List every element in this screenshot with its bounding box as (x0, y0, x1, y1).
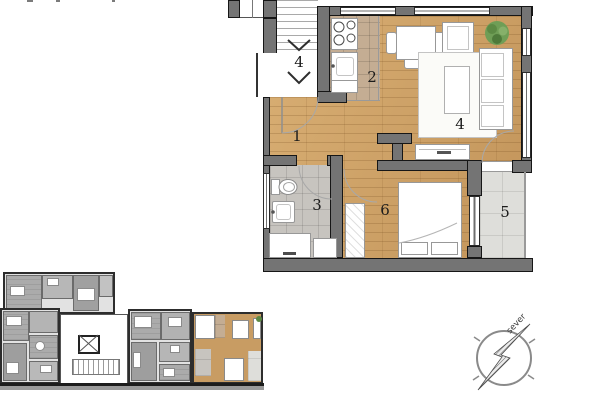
stairwell-wall (263, 18, 277, 55)
stair-line (252, 0, 253, 18)
pillow (401, 242, 428, 255)
terrace-door-opening (482, 161, 512, 172)
ground-line (0, 383, 264, 390)
mini-furniture (170, 345, 180, 353)
window (263, 173, 270, 229)
stove (331, 18, 358, 50)
overview-apartment (0, 308, 60, 384)
kitchen-counter (331, 80, 358, 93)
kitchen-sink-basin (336, 57, 354, 76)
terrace-window-door (469, 196, 480, 246)
kitchen-floor-edge (378, 14, 379, 101)
room-label-bedroom: 6 (380, 201, 390, 219)
coffee-table (444, 66, 470, 114)
shower-drain (283, 252, 296, 255)
room-label-terrace: 5 (500, 203, 510, 221)
compass-circle (477, 331, 531, 385)
pillow (431, 242, 458, 255)
mini-furniture (133, 352, 141, 368)
wardrobe (345, 203, 365, 258)
compass-north-label: sever (505, 312, 529, 336)
building-overview-plan (0, 266, 270, 396)
mini-terrace (248, 351, 261, 381)
mini-furniture (163, 368, 175, 377)
living-terrace-wall (512, 160, 532, 173)
window (414, 7, 490, 15)
main-floor-plan: 1 2 3 4 5 6 4 (0, 0, 601, 290)
mini-furniture (168, 317, 182, 327)
bedroom-terrace-wall (467, 160, 482, 196)
compass-ticks (473, 337, 535, 380)
overview-apartment-highlighted (192, 312, 263, 384)
room-label-living: 4 (455, 115, 465, 133)
stair-treads (277, 0, 318, 52)
kitchen-floor-edge (347, 100, 380, 101)
mini-furniture (35, 341, 45, 351)
window (340, 7, 396, 15)
washing-machine (313, 238, 337, 258)
mini-bathroom (195, 349, 211, 376)
tv-stand-handle (437, 151, 451, 154)
room-label-kitchen: 2 (367, 68, 377, 86)
mini-bed (224, 358, 244, 381)
elevator (78, 335, 100, 354)
core-stairs (72, 359, 120, 375)
room-label-hallway: 1 (292, 127, 302, 145)
mini-furniture (134, 316, 152, 328)
room-label-bathroom: 3 (312, 196, 322, 214)
sofa-cushion (481, 53, 504, 77)
mini-rug (232, 320, 249, 339)
compass: sever (473, 312, 535, 390)
toilet-tank (271, 179, 280, 195)
compass-needle (478, 324, 530, 390)
mini-furniture (47, 278, 59, 286)
overview-room (29, 311, 58, 333)
stairwell-wall (263, 0, 277, 18)
stairwell-floor-number: 4 (294, 53, 304, 71)
mini-kitchen (215, 315, 225, 338)
bathroom-sink-basin (276, 204, 291, 220)
mini-furniture (6, 316, 22, 326)
mini-furniture (77, 288, 95, 301)
mini-stairwell (195, 315, 215, 339)
sofa-cushion (481, 79, 504, 103)
sofa-cushion (481, 105, 504, 127)
mini-furniture (40, 365, 52, 373)
armchair-cushion (447, 26, 469, 50)
building-core (60, 314, 128, 384)
bathroom-wall (263, 155, 297, 166)
stair-wall (228, 0, 240, 18)
stair-landing (256, 53, 318, 97)
tv-stand-line (419, 149, 466, 150)
floor-plan-page: 1 2 3 4 5 6 4 (0, 0, 601, 407)
mini-furniture (10, 286, 25, 296)
window (522, 72, 531, 158)
window (522, 28, 531, 56)
exterior-wall-bottom (263, 258, 533, 272)
overview-apartment (128, 309, 192, 384)
mini-furniture (6, 362, 19, 374)
overview-room (99, 275, 113, 297)
kitchen-wall (317, 6, 330, 101)
bedroom-terrace-wall (467, 246, 482, 258)
terrace-railing (524, 172, 526, 258)
mini-plant (256, 316, 262, 322)
